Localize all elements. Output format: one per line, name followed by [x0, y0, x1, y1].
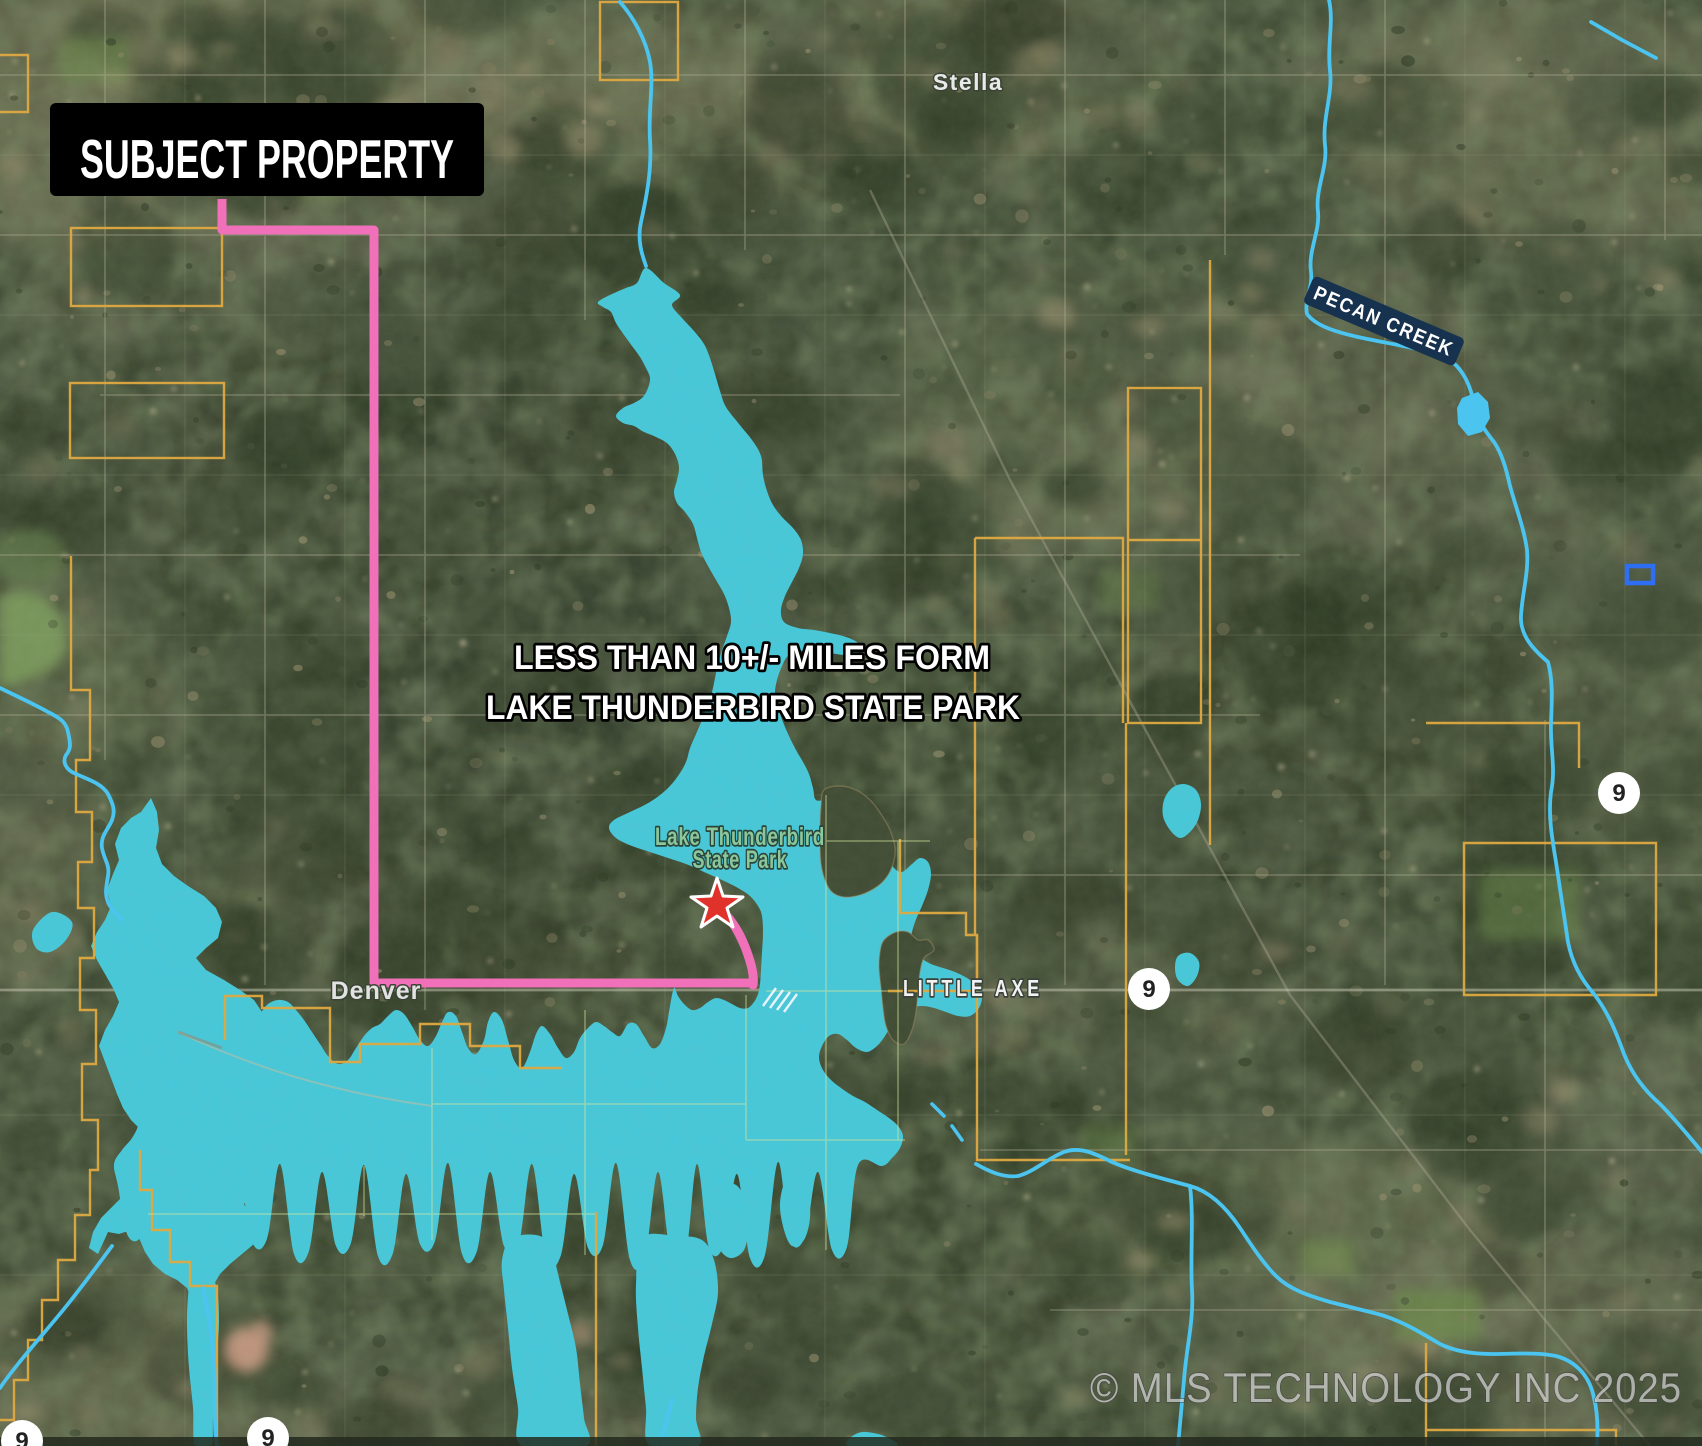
svg-text:© MLS TECHNOLOGY INC 2025: © MLS TECHNOLOGY INC 2025	[1090, 1364, 1682, 1411]
svg-text:9: 9	[261, 1425, 274, 1446]
svg-text:LAKE THUNDERBIRD STATE PARK: LAKE THUNDERBIRD STATE PARK	[486, 689, 1020, 727]
svg-text:SUBJECT PROPERTY: SUBJECT PROPERTY	[80, 128, 454, 190]
svg-text:Stella: Stella	[933, 69, 1003, 95]
svg-text:Denver: Denver	[331, 977, 422, 1005]
svg-text:9: 9	[15, 1428, 28, 1446]
svg-text:LITTLE AXE: LITTLE AXE	[903, 975, 1043, 1001]
svg-text:LESS THAN 10+/- MILES FORM: LESS THAN 10+/- MILES FORM	[514, 639, 990, 677]
svg-text:9: 9	[1612, 780, 1625, 807]
svg-text:State Park: State Park	[693, 846, 788, 874]
svg-text:9: 9	[1142, 976, 1155, 1003]
